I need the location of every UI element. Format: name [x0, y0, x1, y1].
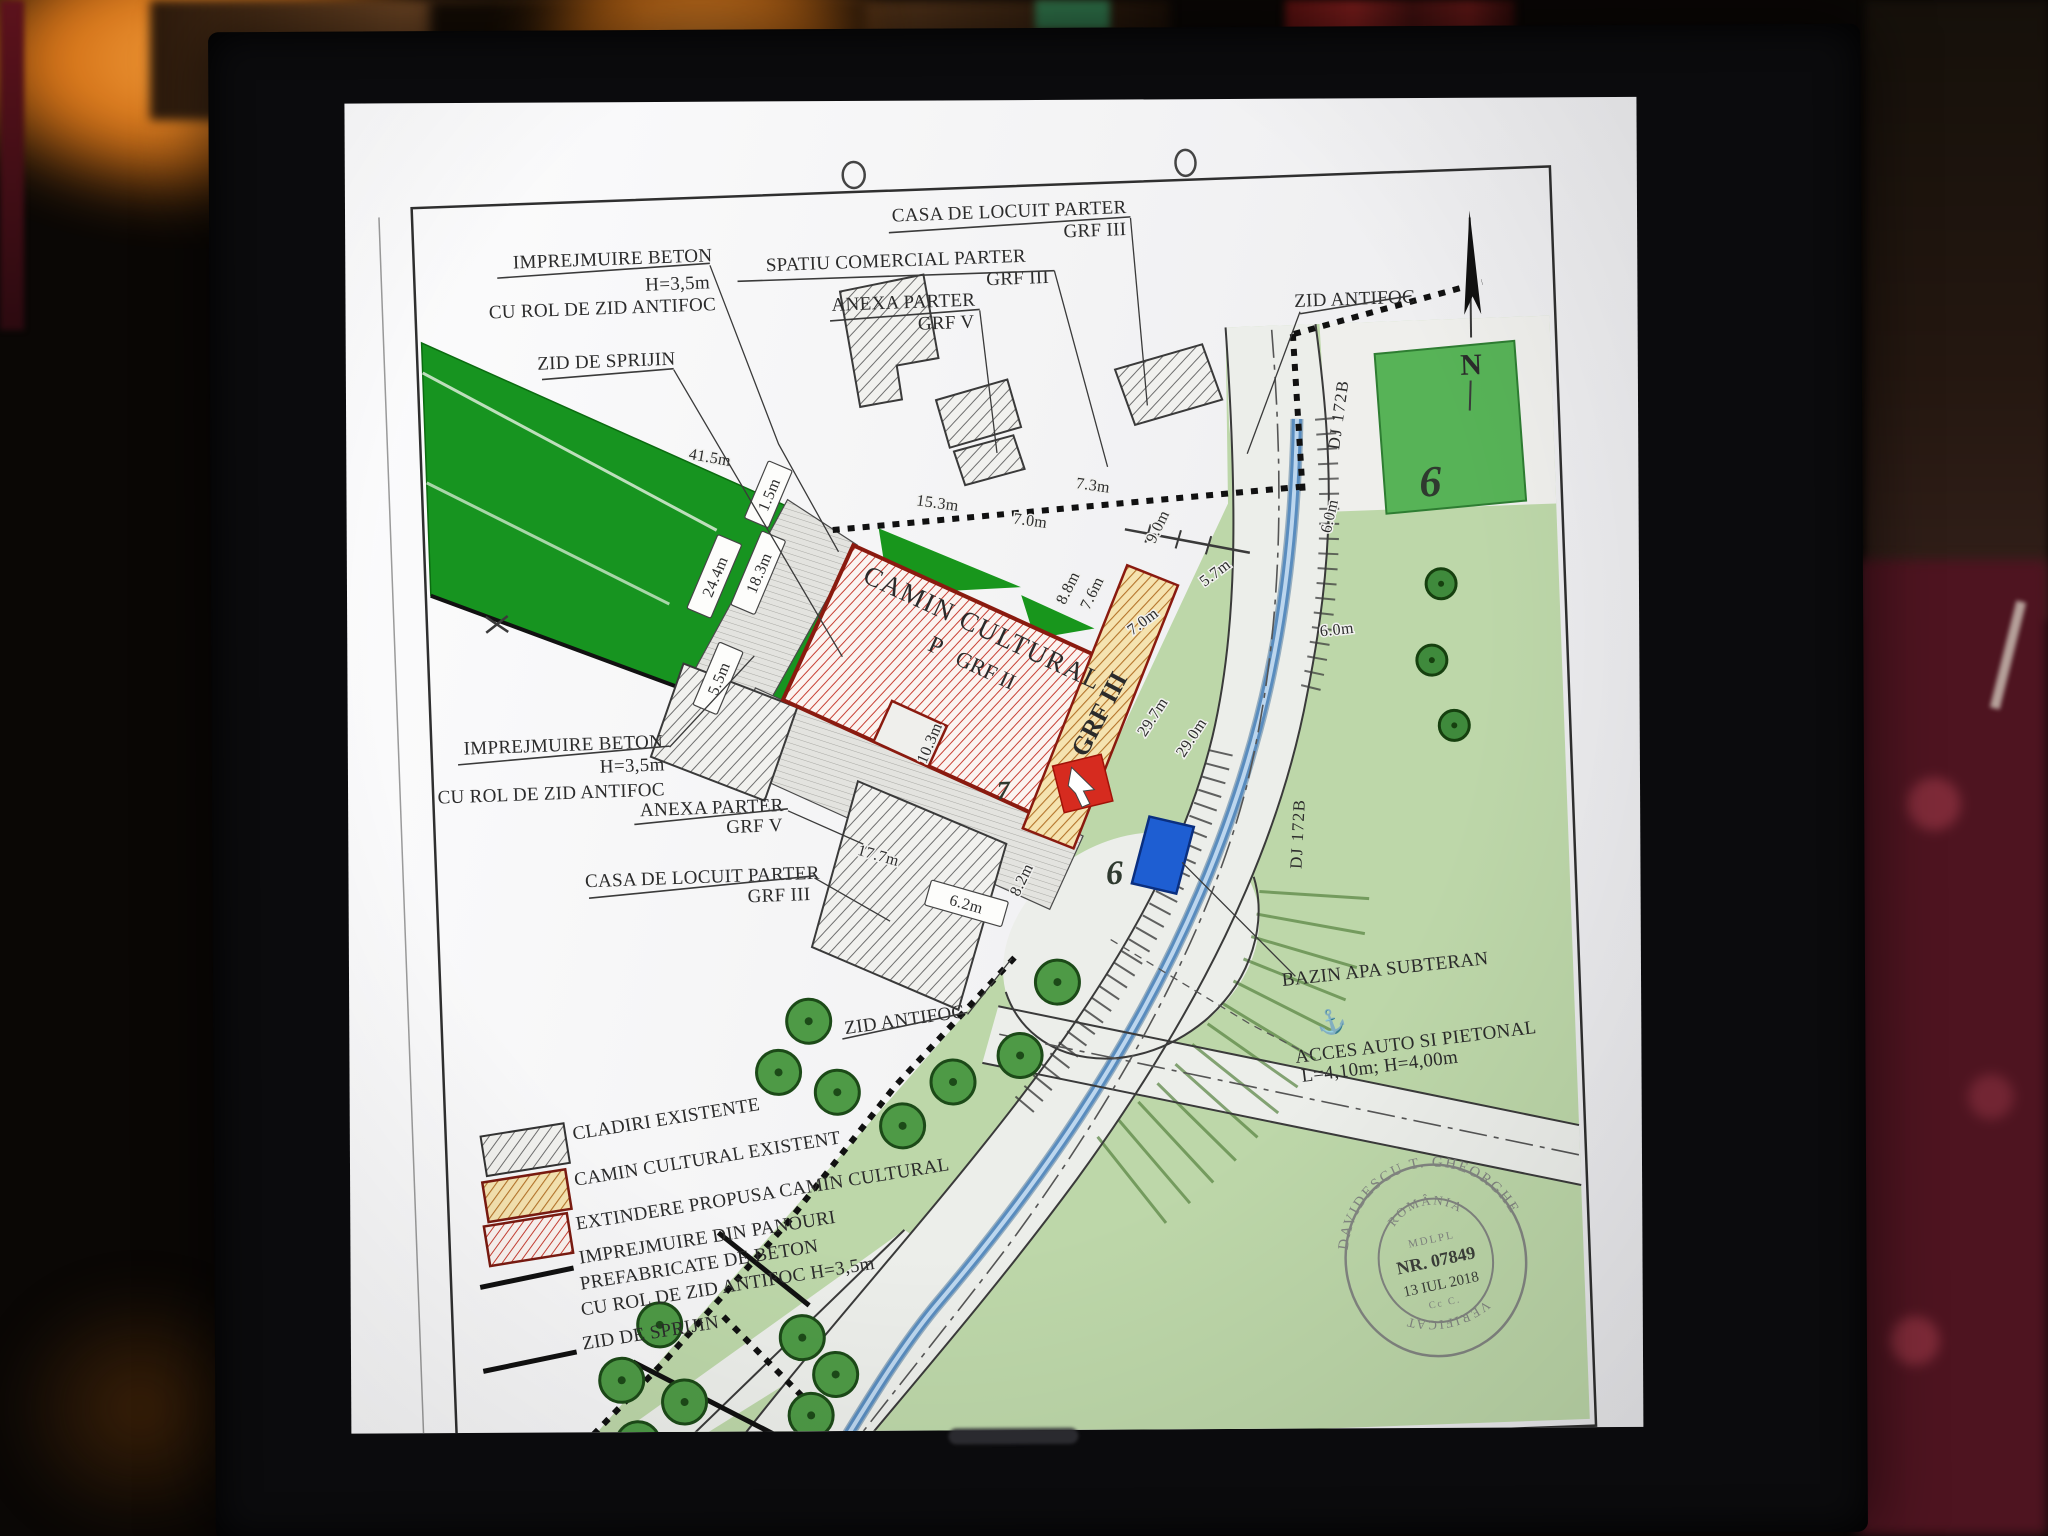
- dim-9-0: 9.0m: [1143, 508, 1173, 546]
- callout-imprejmuire-top-1: IMPREJMUIRE BETON: [513, 245, 713, 273]
- plot-number-6-field: 6: [1418, 457, 1442, 507]
- road-name-dj172b-bottom: DJ 172B: [1286, 798, 1309, 869]
- legend-label-cladiri: CLADIRI EXISTENTE: [571, 1094, 761, 1145]
- leader-line: [1054, 269, 1107, 469]
- tree: [930, 1059, 976, 1105]
- building-existing-right: [1114, 344, 1223, 426]
- tree: [1035, 959, 1081, 1005]
- bush: [1426, 568, 1457, 599]
- green-plot-6: [1374, 341, 1526, 514]
- tree: [997, 1033, 1043, 1079]
- legend-swatch-cladiri: [481, 1123, 570, 1176]
- callout-imprejmuire-left-2: H=3,5m: [599, 754, 664, 777]
- tree: [815, 1069, 861, 1115]
- callout-imprejmuire-top-3: CU ROL DE ZID ANTIFOC: [489, 294, 717, 323]
- tree: [786, 998, 832, 1044]
- tree: [779, 1315, 825, 1361]
- callout-casa-bottom-2: GRF III: [747, 884, 811, 907]
- callout-imprejmuire-left-3: CU ROL DE ZID ANTIFOC: [437, 779, 665, 808]
- callout-zid-antifoc-bottom: ZID ANTIFOC: [843, 1001, 966, 1039]
- callout-zid-antifoc-top: ZID ANTIFOC: [1294, 287, 1416, 312]
- tree: [756, 1050, 802, 1096]
- legend-line-imprejmuire: [480, 1268, 575, 1287]
- callout-anexa-bottom-2: GRF V: [726, 815, 783, 838]
- right-wall: [1865, 0, 2048, 620]
- green-object: [1035, 0, 1110, 30]
- plot-number-6-road: 6: [1105, 855, 1123, 893]
- dim-15-3: 15.3m: [915, 492, 960, 515]
- bush: [1416, 645, 1447, 676]
- dim-7-6: 7.6m: [1077, 574, 1107, 612]
- dim-7-0a: 7.0m: [1012, 510, 1048, 532]
- tree: [599, 1358, 645, 1404]
- north-label: N: [1460, 348, 1483, 382]
- callout-imprejmuire-top-2: H=3,5m: [645, 272, 710, 295]
- photo-of-screen: N 24.4m 18.3m 5.5m 1.5m 6.2m 41.5m 15.3m…: [0, 0, 2048, 1536]
- callout-casa-top-2: GRF III: [1063, 219, 1127, 242]
- dim-7-3: 7.3m: [1075, 475, 1111, 497]
- plot-number-7: 7: [996, 776, 1011, 805]
- tree: [880, 1103, 926, 1149]
- carpet: [1858, 560, 2048, 1536]
- legend-line-zid-sprijin: [483, 1352, 578, 1371]
- callout-anexa-top-2: GRF V: [918, 312, 975, 335]
- tv-brand-logo: [948, 1428, 1078, 1445]
- red-wall-strip: [0, 0, 24, 330]
- tree: [788, 1393, 834, 1434]
- tree: [662, 1379, 708, 1425]
- binder-hole: [1175, 149, 1196, 176]
- dim-6-0b: 6.0m: [1319, 620, 1355, 641]
- bush: [1439, 710, 1470, 741]
- site-plan: N 24.4m 18.3m 5.5m 1.5m 6.2m 41.5m 15.3m…: [344, 97, 1643, 1434]
- tv-screen: N 24.4m 18.3m 5.5m 1.5m 6.2m 41.5m 15.3m…: [344, 97, 1643, 1434]
- tree: [813, 1352, 859, 1398]
- tv-bezel: N 24.4m 18.3m 5.5m 1.5m 6.2m 41.5m 15.3m…: [208, 24, 1868, 1536]
- binder-hole: [842, 162, 865, 189]
